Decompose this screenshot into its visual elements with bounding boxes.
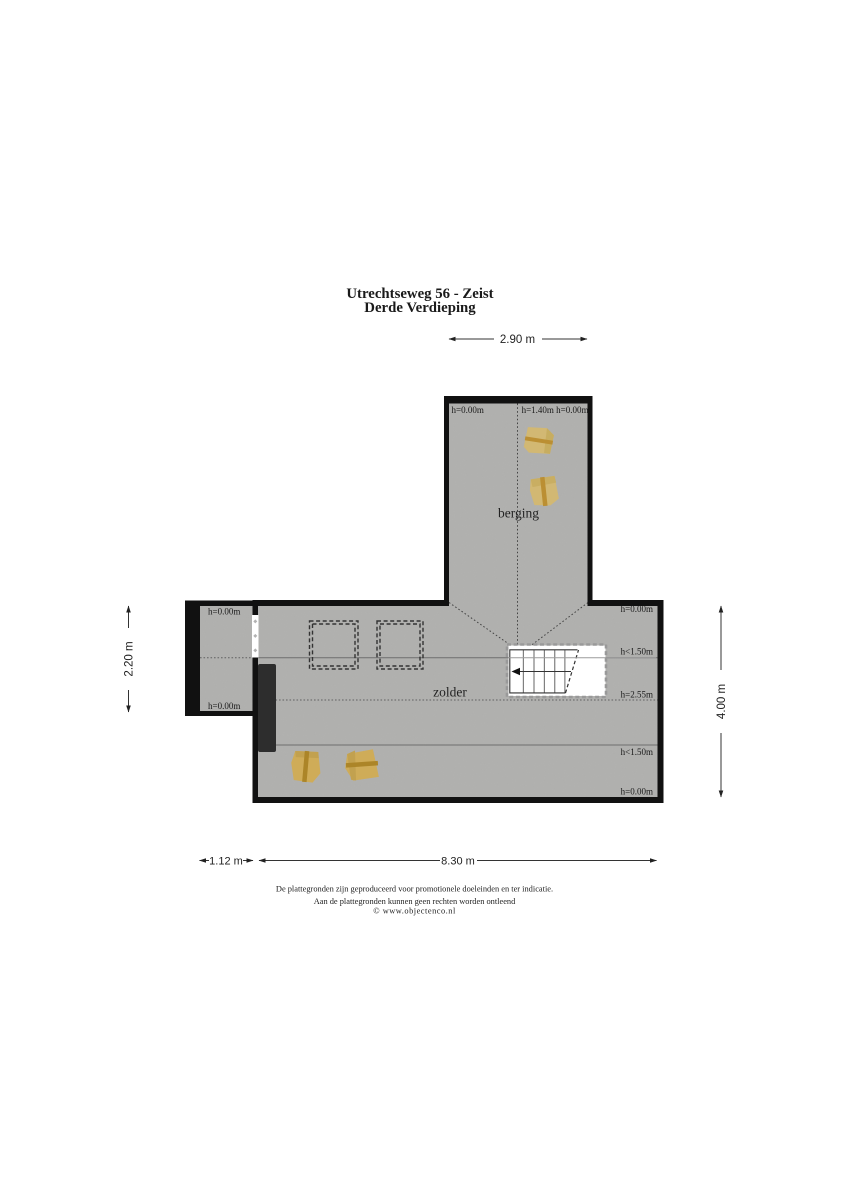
svg-text:h<1.50m: h<1.50m bbox=[621, 747, 653, 757]
svg-text:h=0.00m: h=0.00m bbox=[208, 701, 240, 711]
svg-text:8.30 m: 8.30 m bbox=[441, 856, 475, 868]
svg-text:h=0.00m: h=0.00m bbox=[208, 607, 240, 617]
svg-text:Derde Verdieping: Derde Verdieping bbox=[364, 300, 476, 316]
svg-text:h=0.00m: h=0.00m bbox=[621, 604, 653, 614]
svg-text:De plattegronden zijn geproduc: De plattegronden zijn geproduceerd voor … bbox=[276, 885, 553, 894]
svg-text:2.90 m: 2.90 m bbox=[500, 334, 535, 346]
svg-text:h=2.55m: h=2.55m bbox=[621, 690, 653, 700]
svg-text:© www.objectenco.nl: © www.objectenco.nl bbox=[373, 907, 456, 916]
svg-text:1.12 m: 1.12 m bbox=[209, 856, 243, 868]
svg-text:h<1.50m: h<1.50m bbox=[621, 647, 653, 657]
svg-text:Aan de plattegronden kunnen ge: Aan de plattegronden kunnen geen rechten… bbox=[314, 897, 516, 906]
svg-text:h=0.00m: h=0.00m bbox=[452, 405, 484, 415]
svg-text:zolder: zolder bbox=[433, 685, 467, 700]
svg-text:h=0.00m: h=0.00m bbox=[621, 787, 653, 797]
svg-text:berging: berging bbox=[498, 506, 539, 521]
svg-text:4.00 m: 4.00 m bbox=[716, 684, 728, 719]
svg-text:2.20 m: 2.20 m bbox=[124, 641, 136, 676]
svg-text:h=1.40m h=0.00m: h=1.40m h=0.00m bbox=[522, 405, 589, 415]
